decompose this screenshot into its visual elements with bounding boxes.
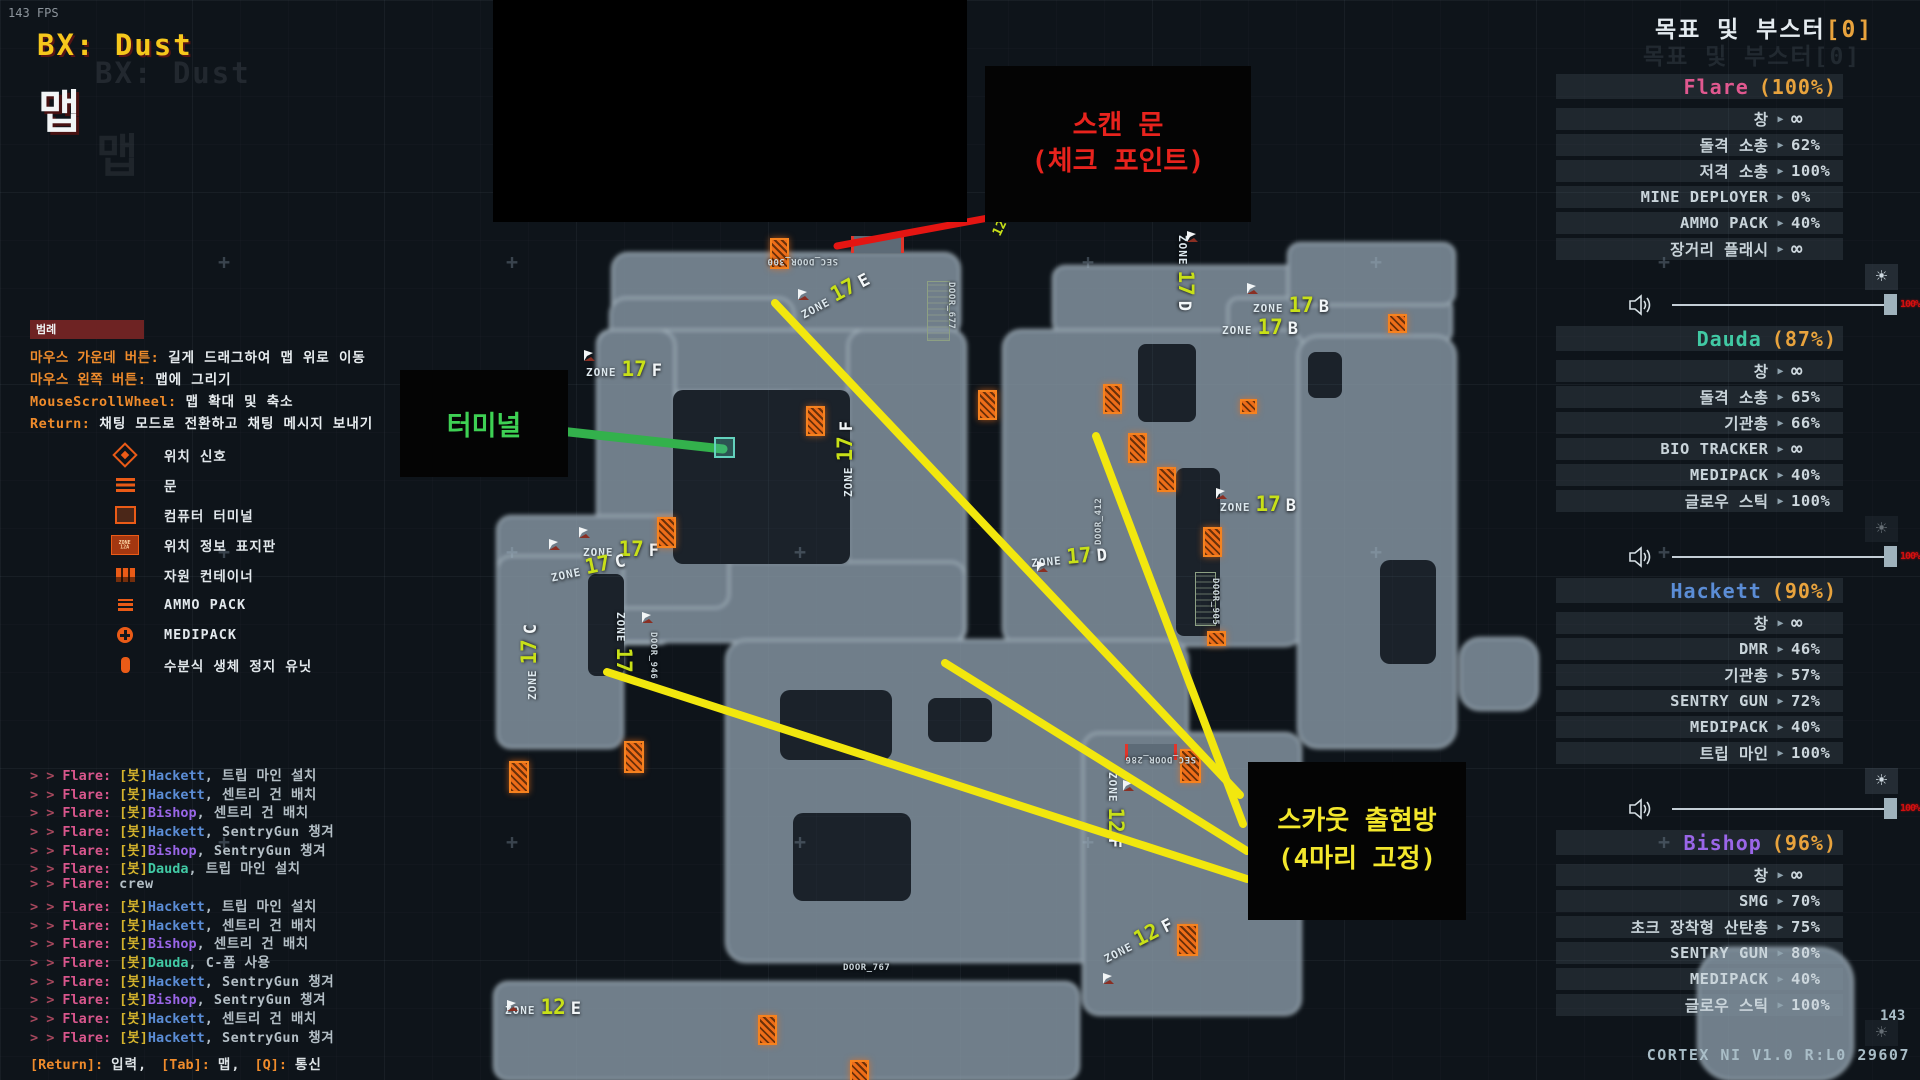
chat-message: , 센트리 건 배치 [197,805,309,821]
scout-note: 스카웃 출현방 (4마리 고정) [1248,762,1466,920]
chat-prefix: > > [30,824,54,840]
loadout-row: 글로우 스틱▶100% [1556,490,1843,512]
zone-number: 17 [517,639,541,664]
chat-bot-name: Hackett [148,787,205,803]
map-marker-flag-icon [548,536,563,549]
chat-bot-tag: [봇] [119,1030,148,1046]
loadout-row: 창▶∞ [1556,360,1843,382]
player-ready-percent: (90%) [1772,579,1837,603]
ammo-icon [108,599,142,611]
door-name-label: DOOR_677 [946,282,956,329]
volume-slider: 100% [1556,796,1920,822]
loadout-label: MEDIPACK [1690,466,1769,484]
loadout-value: 65% [1791,388,1843,406]
fps-counter: 143 FPS [8,6,59,20]
door-name-label: DOOR_946 [648,632,658,679]
hotkey-action: 통신 [295,1057,322,1073]
chat-bot-name: Bishop [148,805,197,821]
chat-line: > >Flare:[봇]Bishop, SentryGun 챙겨 [30,988,336,1007]
volume-handle[interactable] [1884,798,1897,819]
chat-sender: Flare: [62,824,111,840]
loadout-label: 장거리 플래시 [1670,238,1768,260]
loadout-label: 트립 마인 [1700,742,1769,764]
brightness-row: ☀ [1556,1020,1920,1046]
map-marker-flag-icon [1122,777,1137,790]
loadout-row: SMG▶70% [1556,890,1843,912]
loadout-row: 트립 마인▶100% [1556,742,1843,764]
arrow-icon: ▶ [1777,244,1784,255]
arrow-icon: ▶ [1777,418,1784,429]
chat-line: > >Flare:[봇]Hackett, SentryGun 챙겨 [30,970,336,989]
zonesign-icon: ZONE 12A [108,535,142,555]
container-icon [108,568,142,582]
chat-line: > >Flare:[봇]Hackett, 센트리 건 배치 [30,914,336,933]
chat-bot-name: Hackett [148,1011,205,1027]
loadout-value: 62% [1791,136,1843,154]
chat-sender: Flare: [62,861,111,877]
chat-prefix: > > [30,955,54,971]
player-section-bishop: Bishop(96%)창▶∞SMG▶70%초크 장착형 산탄총▶75%SENTR… [1556,830,1920,1046]
expedition-title: BX: Dust [37,28,193,62]
chat-bot-tag: [봇] [119,936,148,952]
arrow-icon: ▶ [1777,618,1784,629]
arrow-icon: ▶ [1777,948,1784,959]
chat-hotkey-hint: [Return]:입력,[Tab]:맵,[Q]:통신 [30,1053,336,1073]
door-icon [1157,467,1176,492]
arrow-icon: ▶ [1777,392,1784,403]
chat-prefix: > > [30,861,54,877]
arrow-icon: ▶ [1777,974,1784,985]
medi-glyph [117,627,133,643]
zone-word: ZONE [1220,501,1251,514]
signal-icon [108,446,142,464]
chat-sender: Flare: [62,899,111,915]
chat-bot-name: Hackett [148,899,205,915]
zone-letter: F [1104,838,1124,848]
hsu-icon [108,657,142,673]
chat-prefix: > > [30,899,54,915]
loadout-value: 100% [1791,744,1843,762]
zonesign-glyph: ZONE 12A [111,535,139,555]
legend-item: 컴퓨터 터미널 [30,500,450,530]
map-marker-flag-icon [1246,280,1261,293]
legend-item-label: AMMO PACK [164,597,246,613]
chat-message: , 센트리 건 배치 [205,918,317,934]
speaker-icon[interactable] [1628,545,1654,573]
legend-item: MEDIPACK [30,620,450,650]
player-name: Flare [1684,75,1749,99]
player-section-hackett: Hackett(90%)창▶∞DMR▶46%기관총▶57%SENTRY GUN▶… [1556,578,1920,822]
loadout-value: 100% [1791,492,1843,510]
chat-prefix: > > [30,936,54,952]
door-name-label: DOOR_412 [1094,498,1104,545]
scan-door-note: 스캔 문 (체크 포인트) [985,66,1251,222]
player-loadout-list: Flare(100%)창▶∞돌격 소총▶62%저격 소총▶100%MINE DE… [1556,74,1920,1048]
loadout-value: 40% [1791,466,1843,484]
chat-message: crew [119,876,154,892]
loadout-value: 40% [1791,214,1843,232]
chat-bot-name: Dauda [148,861,189,877]
volume-value: 100% [1900,551,1920,562]
door-icon [1240,399,1257,414]
legend-item-label: 자원 컨테이너 [164,565,254,585]
loadout-row: 장거리 플래시▶∞ [1556,238,1843,260]
chat-line: > >Flare:[봇]Dauda, 트립 마인 설치 [30,857,336,876]
zone-number: 12 [541,995,566,1019]
loadout-row: 돌격 소총▶62% [1556,134,1843,156]
loadout-value: ∞ [1791,868,1843,882]
door-icon [850,1060,869,1080]
player-section-dauda: Dauda(87%)창▶∞돌격 소총▶65%기관총▶66%BIO TRACKER… [1556,326,1920,570]
chat-bot-name: Hackett [148,824,205,840]
zone-label-17b: ZONE17B [1220,492,1296,516]
chat-sender: Flare: [62,992,111,1008]
loadout-label: MINE DEPLOYER [1641,188,1769,206]
scout-note-line2: (4마리 고정) [1278,841,1436,879]
loadout-row: SENTRY GUN▶72% [1556,690,1843,712]
loadout-label: 돌격 소총 [1700,386,1769,408]
player-ready-percent: (100%) [1759,75,1837,99]
binding-key: Return: [30,416,90,432]
player-header: Hackett(90%) [1556,578,1843,603]
chat-message: , 트립 마인 설치 [205,899,317,915]
chat-message: , 센트리 건 배치 [197,936,309,952]
chat-prefix: > > [30,876,54,892]
loadout-row: DMR▶46% [1556,638,1843,660]
door-name-label: SEC_DOOR_286 [1125,754,1196,764]
binding-key: MouseScrollWheel: [30,394,177,410]
scan-note-line1: 스캔 문 [1073,108,1164,144]
censored-area-box [493,0,967,222]
chat-bot-tag: [봇] [119,861,148,877]
loadout-row: 창▶∞ [1556,108,1843,130]
legend-item-label: 컴퓨터 터미널 [164,505,254,525]
player-section-flare: Flare(100%)창▶∞돌격 소총▶62%저격 소총▶100%MINE DE… [1556,74,1920,318]
zone-letter: D [1096,545,1108,566]
zone-number: 12 [1104,808,1128,833]
chat-sender: Flare: [62,1011,111,1027]
legend-item: AMMO PACK [30,590,450,620]
loadout-label: AMMO PACK [1680,214,1769,232]
arrow-icon: ▶ [1777,140,1784,151]
chat-bot-tag: [봇] [119,918,148,934]
arrow-icon: ▶ [1777,496,1784,507]
door-icon [509,761,529,793]
chat-bot-name: Hackett [148,918,205,934]
volume-slider: 100% [1556,292,1920,318]
brightness-row: ☀ [1556,768,1920,794]
arrow-icon: ▶ [1777,748,1784,759]
chat-prefix: > > [30,918,54,934]
chat-bot-name: Hackett [148,768,205,784]
frame-counter: 143 [1880,1008,1905,1024]
arrow-icon: ▶ [1777,166,1784,177]
chat-prefix: > > [30,787,54,803]
door-glyph [116,478,135,492]
player-name: Hackett [1670,579,1761,603]
chat-message: , 트립 마인 설치 [189,861,301,877]
legend-title: 범례 [30,320,144,339]
chat-bot-tag: [봇] [119,899,148,915]
loadout-label: 글로우 스틱 [1685,490,1769,512]
legend-binding: Return:채팅 모드로 전환하고 채팅 메시지 보내기 [30,412,450,434]
loadout-label: DMR [1739,640,1769,658]
chat-line: > >Flare:[봇]Hackett, 센트리 건 배치 [30,1007,336,1026]
hotkey-action: 맵, [218,1057,241,1073]
terminal-icon [108,506,142,524]
scout-note-line1: 스카웃 출현방 [1277,803,1436,841]
chat-sender: Flare: [62,955,111,971]
chat-line: > >Flare:[봇]Hackett, SentryGun 챙겨 [30,1026,336,1045]
zone-number: 12 [1130,918,1163,951]
chat-bot-name: Dauda [148,955,189,971]
chat-bot-name: Hackett [148,1030,205,1046]
loadout-row: MEDIPACK▶40% [1556,968,1843,990]
legend-item-label: 위치 신호 [164,445,227,465]
loadout-label: 창 [1754,360,1769,382]
volume-value: 100% [1900,299,1920,310]
zone-word: ZONE [1222,324,1253,337]
loadout-row: 초크 장착형 산탄총▶75% [1556,916,1843,938]
chat-message: , SentryGun 챙겨 [205,824,334,840]
zone-label-17: ZONE17 [612,612,636,673]
zone-word: ZONE [526,670,539,701]
chat-message: , 센트리 건 배치 [205,1011,317,1027]
legend-item: 위치 신호 [30,440,450,470]
chat-prefix: > > [30,843,54,859]
loadout-label: SENTRY GUN [1670,692,1768,710]
chat-bot-tag: [봇] [119,843,148,859]
loadout-value: ∞ [1791,364,1843,378]
chat-log: > >Flare:[봇]Hackett, 트립 마인 설치> >Flare:[봇… [30,764,336,1073]
zone-word: ZONE [1253,302,1284,315]
door-icon [758,1015,777,1045]
objectives-title: 목표 및 부스터[0] [1655,10,1873,44]
player-name: Bishop [1684,831,1762,855]
volume-track[interactable] [1672,556,1888,558]
volume-handle[interactable] [1884,546,1897,567]
brightness-row: ☀ [1556,516,1920,542]
chat-bot-tag: [봇] [119,992,148,1008]
loadout-value: ∞ [1791,442,1843,456]
chat-line: > >Flare:[봇]Bishop, 센트리 건 배치 [30,801,336,820]
loadout-row: 돌격 소총▶65% [1556,386,1843,408]
arrow-icon: ▶ [1777,870,1784,881]
chat-line: > >Flare:[봇]Hackett, 센트리 건 배치 [30,783,336,802]
loadout-value: ∞ [1791,242,1843,256]
loadout-row: BIO TRACKER▶∞ [1556,438,1843,460]
chat-sender: Flare: [62,876,111,892]
arrow-icon: ▶ [1777,722,1784,733]
map-marker-flag-icon [641,609,656,622]
map-marker-flag-icon [506,997,521,1010]
loadout-label: 초크 장착형 산탄총 [1631,916,1769,938]
door-icon [1103,384,1122,414]
binding-desc: 맵에 그리기 [155,372,231,388]
zone-label-17f: ZONE17F [833,421,857,497]
zone-letter: B [1288,319,1298,339]
chat-bot-tag: [봇] [119,974,148,990]
loadout-row: 창▶∞ [1556,864,1843,886]
legend-item-label: 수분식 생체 정지 유닛 [164,655,312,675]
arrow-icon: ▶ [1777,922,1784,933]
loadout-row: 창▶∞ [1556,612,1843,634]
brightness-button[interactable]: ☀ [1865,768,1898,794]
binding-desc: 맵 확대 및 축소 [186,394,294,410]
map-marker-flag-icon [1215,485,1230,498]
map-marker-flag-icon [797,286,812,299]
arrow-icon: ▶ [1777,696,1784,707]
signal-glyph [112,442,137,467]
map-marker-flag-icon [583,347,598,360]
door-icon [1207,631,1226,646]
brightness-button[interactable]: ☀ [1865,516,1898,542]
chat-line: > >Flare:[봇]Hackett, 트립 마인 설치 [30,764,336,783]
zone-number: 17 [1256,492,1281,516]
loadout-row: 글로우 스틱▶100% [1556,994,1843,1016]
chat-sender: Flare: [62,918,111,934]
chat-bot-name: Hackett [148,974,205,990]
loadout-label: 글로우 스틱 [1685,994,1769,1016]
loadout-row: AMMO PACK▶40% [1556,212,1843,234]
zone-word: ZONE [614,612,627,643]
medi-icon [108,627,142,643]
volume-track[interactable] [1672,808,1888,810]
volume-value: 100% [1900,803,1920,814]
zone-letter: F [837,421,857,431]
zone-word: ZONE [550,565,583,584]
loadout-value: ∞ [1791,112,1843,126]
zone-number: 17 [1258,315,1283,339]
loadout-row: 기관총▶57% [1556,664,1843,686]
speaker-icon[interactable] [1628,797,1654,825]
door-icon [1128,433,1147,463]
legend-items: 위치 신호문컴퓨터 터미널ZONE 12A위치 정보 표지판자원 컨테이너AMM… [30,440,450,680]
loadout-label: 기관총 [1724,664,1768,686]
ammo-glyph [118,599,133,611]
loadout-label: MEDIPACK [1690,970,1769,988]
terminal-note-text: 터미널 [447,404,522,443]
map-screen[interactable]: ++++++++++++++++++ ZONE17EZONE17DZONE17F… [0,0,1920,1080]
terminal-marker[interactable] [714,437,735,458]
loadout-label: BIO TRACKER [1660,440,1768,458]
binding-desc: 길게 드래그하여 맵 위로 이동 [168,350,366,366]
player-ready-percent: (96%) [1772,831,1837,855]
chat-line: > >Flare:[봇]Bishop, SentryGun 챙겨 [30,839,336,858]
speaker-icon[interactable] [1628,293,1654,321]
legend-item: 수분식 생체 정지 유닛 [30,650,450,680]
zone-number: 17 [1174,271,1198,296]
arrow-icon: ▶ [1777,192,1784,203]
loadout-row: SENTRY GUN▶80% [1556,942,1843,964]
legend-binding: MouseScrollWheel:맵 확대 및 축소 [30,390,450,412]
legend-item: 자원 컨테이너 [30,560,450,590]
loadout-row: MINE DEPLOYER▶0% [1556,186,1843,208]
map-marker-flag-icon [1102,970,1117,983]
door-icon [108,478,142,492]
legend-item-label: MEDIPACK [164,627,237,643]
chat-bot-tag: [봇] [119,824,148,840]
zone-letter: F [652,361,662,381]
volume-slider: 100% [1556,544,1920,570]
zone-label-17b: ZONE17B [1222,315,1298,339]
security-door-icon [851,236,904,253]
door-icon [1177,924,1198,956]
player-header: Dauda(87%) [1556,326,1843,351]
loadout-value: 80% [1791,944,1843,962]
chat-lines: > >Flare:[봇]Hackett, 트립 마인 설치> >Flare:[봇… [30,764,336,1044]
loadout-value: ∞ [1791,616,1843,630]
loadout-value: 100% [1791,162,1843,180]
chat-bot-tag: [봇] [119,768,148,784]
volume-track[interactable] [1672,304,1888,306]
door-name-label: DOOR_767 [843,963,890,973]
loadout-label: SENTRY GUN [1670,944,1768,962]
loadout-label: SMG [1739,892,1769,910]
chat-message: , 트립 마인 설치 [205,768,317,784]
map-marker-flag-icon [578,524,593,537]
zone-number: 17 [583,550,613,579]
legend-item: ZONE 12A위치 정보 표지판 [30,530,450,560]
legend-panel: 범례 마우스 가운데 버튼:길게 드래그하여 맵 위로 이동마우스 왼쪽 버튼:… [30,318,450,680]
zone-label-17c: ZONE17C [517,624,541,700]
player-name: Dauda [1697,327,1762,351]
loadout-row: MEDIPACK▶40% [1556,716,1843,738]
chat-bot-name: Bishop [148,936,197,952]
zone-letter: B [1286,496,1296,516]
brightness-row: ☀ [1556,264,1920,290]
scan-note-line2: (체크 포인트) [1032,144,1205,180]
loadout-label: 창 [1754,612,1769,634]
player-header: Flare(100%) [1556,74,1843,99]
chat-line: > >Flare:crew [30,876,336,895]
arrow-icon: ▶ [1777,670,1784,681]
objectives-counter: [0] [1826,17,1874,43]
chat-message: , SentryGun 챙겨 [205,1030,334,1046]
version-string: CORTEX NI V1.0 R:L0 29607 [1647,1046,1910,1064]
volume-handle[interactable] [1884,294,1897,315]
zone-word: ZONE [1102,940,1135,965]
loadout-value: 70% [1791,892,1843,910]
chat-bot-tag: [봇] [119,955,148,971]
binding-key: 마우스 가운데 버튼: [30,350,159,366]
legend-item: 문 [30,470,450,500]
chat-line: > >Flare:[봇]Hackett, SentryGun 챙겨 [30,820,336,839]
arrow-icon: ▶ [1777,218,1784,229]
loadout-value: 46% [1791,640,1843,658]
container-glyph [116,568,135,582]
chat-prefix: > > [30,992,54,1008]
door-name-label: SEC_DOOR_300 [767,256,838,266]
loadout-label: MEDIPACK [1690,718,1769,736]
zone-sign-text: ZONE 12A [119,540,131,550]
hotkey-action: 입력, [111,1057,147,1073]
chat-sender: Flare: [62,768,111,784]
loadout-label: 저격 소총 [1700,160,1769,182]
chat-line: > >Flare:[봇]Bishop, 센트리 건 배치 [30,932,336,951]
page-title-map: 맵 [38,76,80,142]
chat-prefix: > > [30,768,54,784]
legend-item-label: 문 [164,475,177,495]
brightness-button[interactable]: ☀ [1865,264,1898,290]
loadout-label: 창 [1754,108,1769,130]
legend-binding: 마우스 가운데 버튼:길게 드래그하여 맵 위로 이동 [30,346,450,368]
zone-label-17b: ZONE17B [1253,293,1329,317]
loadout-value: 66% [1791,414,1843,432]
door-icon [1203,527,1222,557]
chat-message: , 센트리 건 배치 [205,787,317,803]
chat-message: , SentryGun 챙겨 [205,974,334,990]
